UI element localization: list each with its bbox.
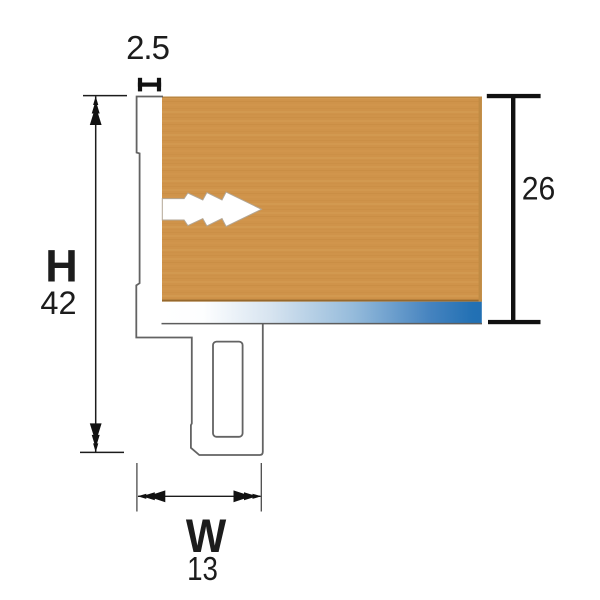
svg-text:26: 26	[522, 171, 556, 207]
svg-text:2.5: 2.5	[126, 29, 169, 66]
svg-text:H: H	[45, 241, 78, 292]
svg-text:42: 42	[40, 285, 76, 321]
svg-text:13: 13	[187, 551, 218, 588]
